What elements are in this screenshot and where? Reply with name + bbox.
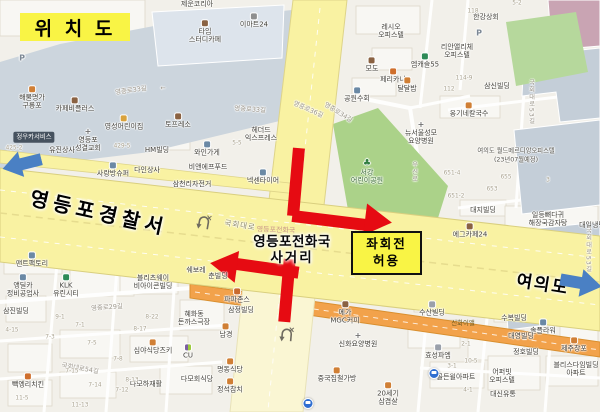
intersection-name-line1: 영등포전화국 xyxy=(253,234,331,250)
page-title: 위 치 도 xyxy=(35,14,116,41)
study-cafe-building xyxy=(152,5,284,66)
left-turn-allowed-line2: 허용 xyxy=(373,253,400,270)
left-turn-allowed-line1: 좌회전 xyxy=(366,236,407,253)
construction-block-2 xyxy=(514,120,600,214)
location-map: 영등포전화국 제운코리아타임 스터디카페이마트24해물명가 구룡포카페비플러스영… xyxy=(0,0,600,412)
title-box: 위 치 도 xyxy=(20,13,130,41)
intersection-name-label: 영등포전화국 사거리 xyxy=(253,234,331,266)
red-arrow-west-head-icon xyxy=(208,247,239,282)
left-turn-allowed-badge: 좌회전 허용 xyxy=(351,231,422,275)
intersection-name-line2: 사거리 xyxy=(253,250,331,266)
